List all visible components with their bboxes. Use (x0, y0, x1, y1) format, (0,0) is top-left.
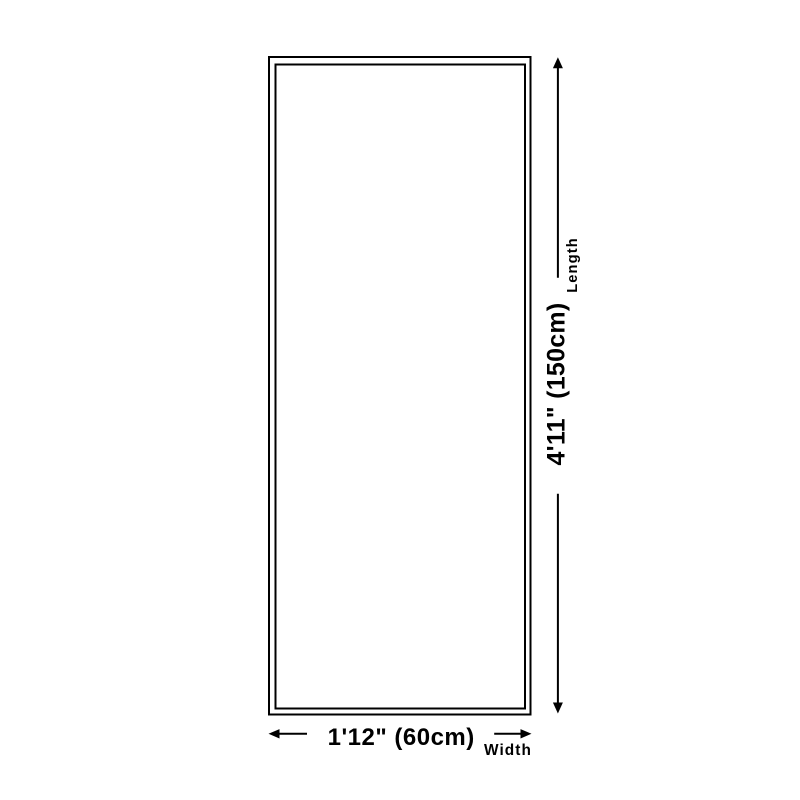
svg-text:Width: Width (484, 742, 532, 759)
svg-text:Length: Length (565, 237, 581, 293)
svg-text:4'11" (150cm): 4'11" (150cm) (542, 302, 570, 465)
svg-text:1'12" (60cm): 1'12" (60cm) (328, 724, 475, 751)
